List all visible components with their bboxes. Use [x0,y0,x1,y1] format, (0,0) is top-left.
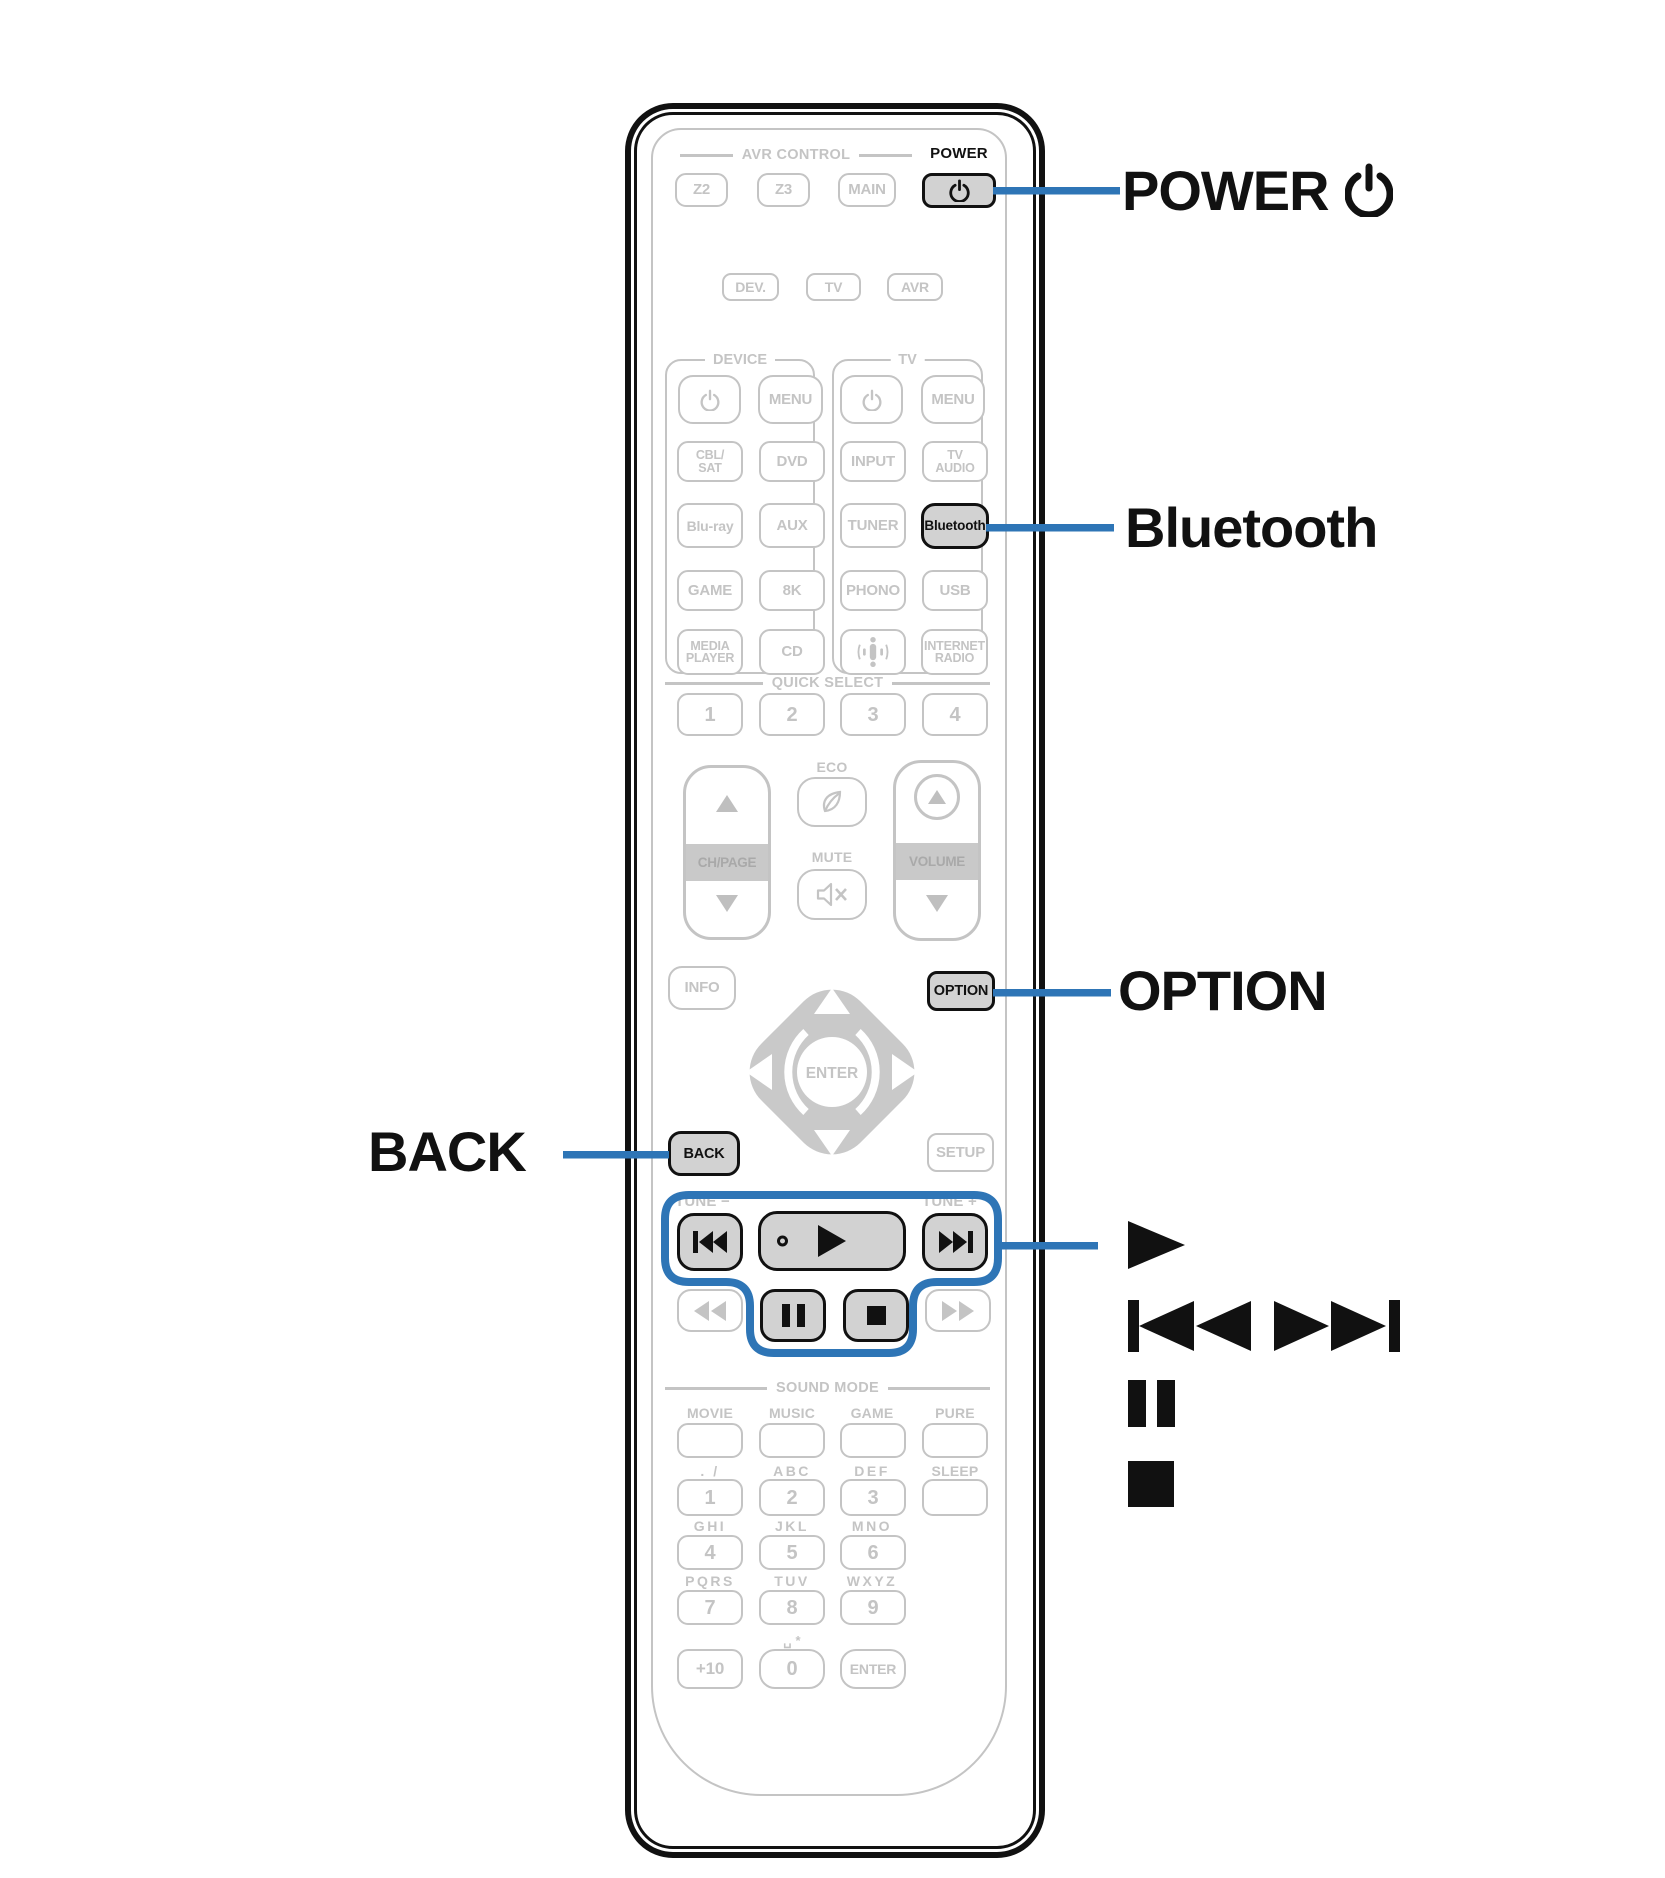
stop-callout-icon [1128,1461,1174,1507]
playback-callout-line [998,1242,1098,1250]
bluetooth-callout: Bluetooth [1125,498,1377,556]
back-callout-line [563,1151,669,1159]
skip-callout-icons [1128,1300,1400,1352]
option-callout-line [993,989,1111,997]
option-callout: OPTION [1118,961,1327,1019]
power-callout: POWER [1122,161,1393,219]
back-callout: BACK [368,1122,526,1180]
callout-overlay [0,0,1665,1878]
pause-callout-icon [1128,1380,1175,1427]
power-callout-text: POWER [1122,158,1329,223]
back-callout-text: BACK [368,1119,526,1184]
power-callout-line [993,187,1120,195]
playback-highlight-outline [665,1195,998,1353]
option-callout-text: OPTION [1118,958,1327,1023]
bluetooth-callout-text: Bluetooth [1125,495,1377,560]
bluetooth-callout-line [986,524,1114,532]
play-callout-icon [1128,1221,1185,1269]
power-callout-icon [1345,163,1393,217]
